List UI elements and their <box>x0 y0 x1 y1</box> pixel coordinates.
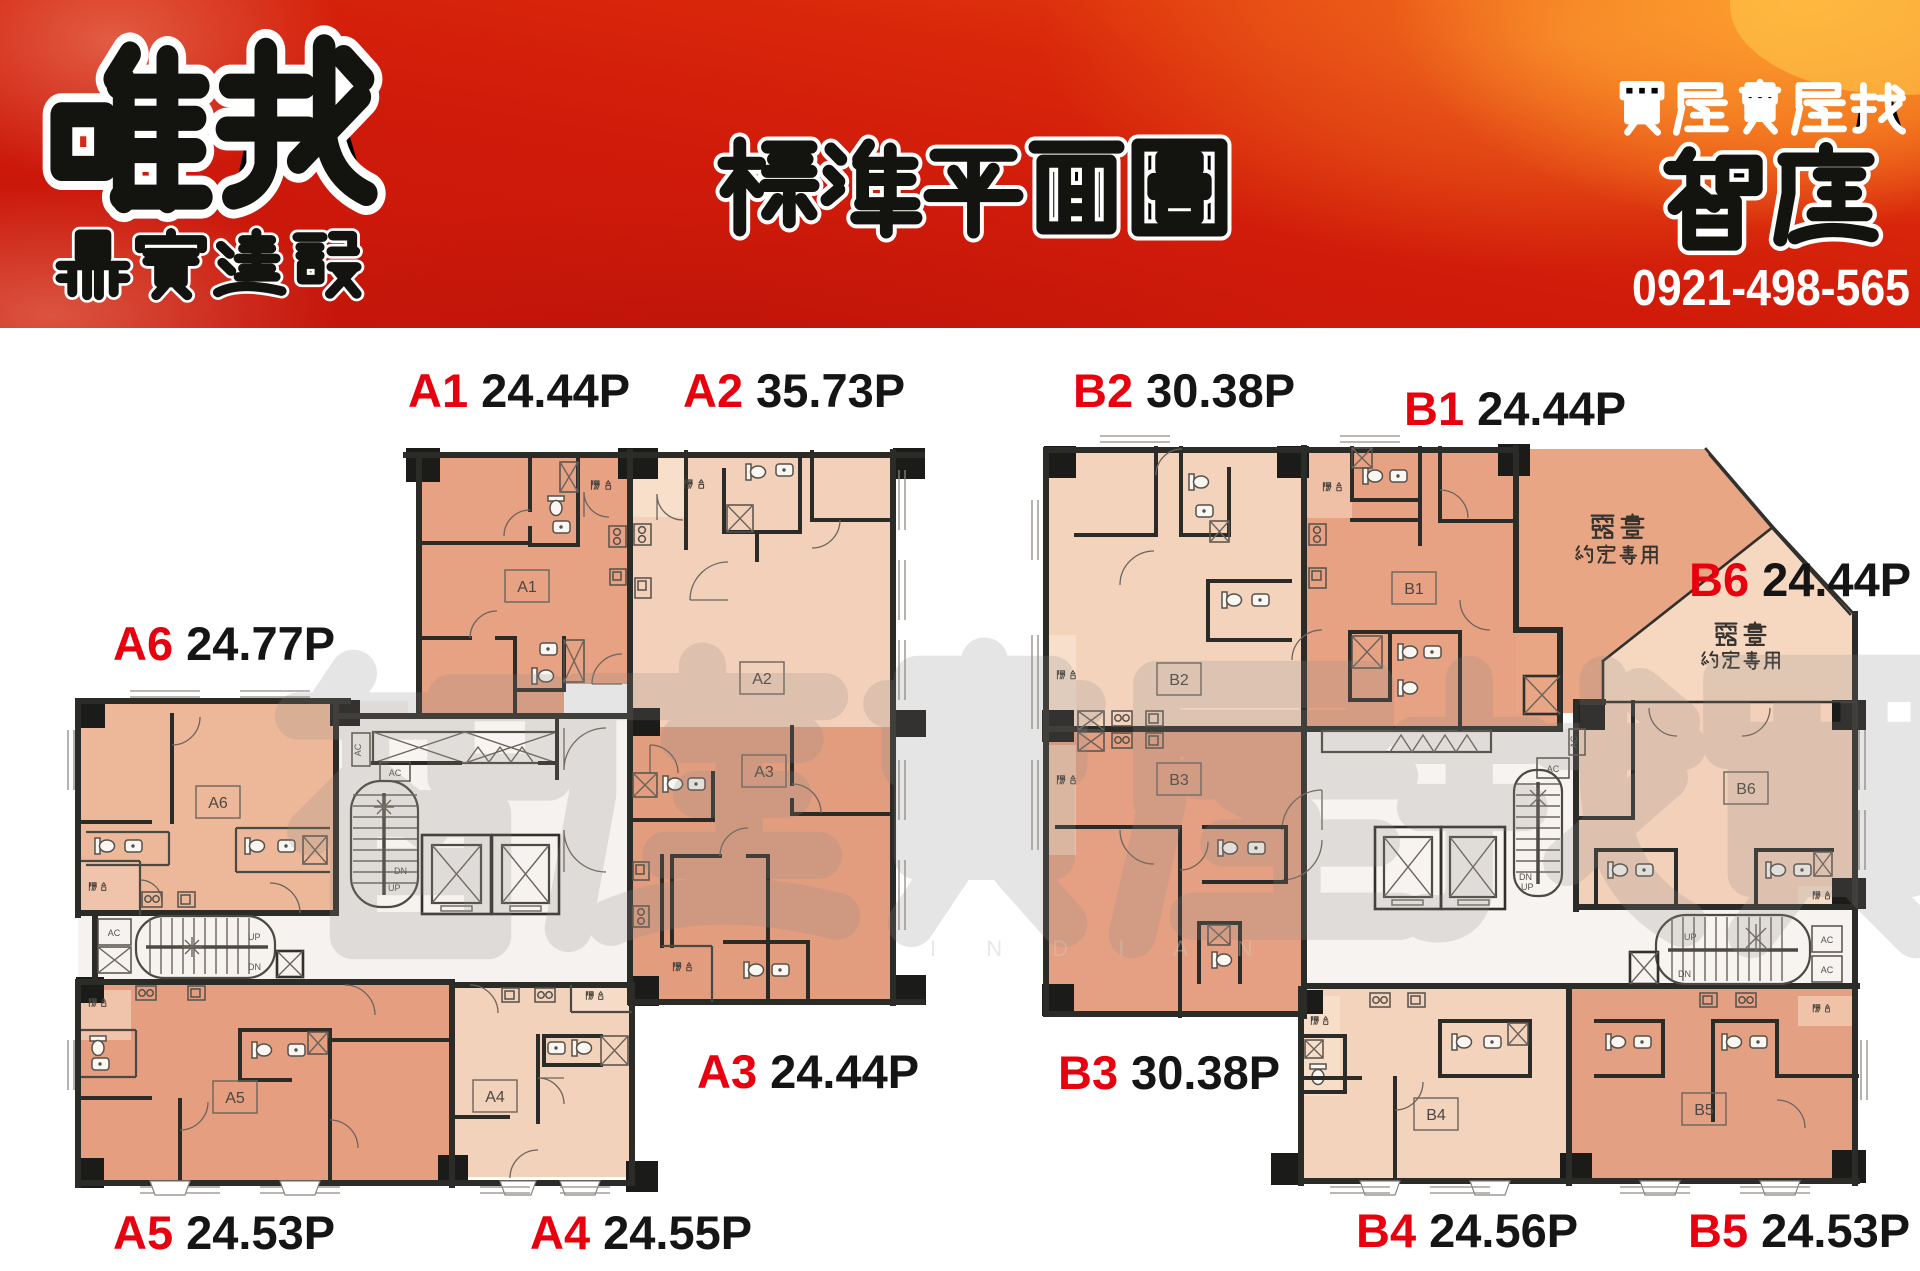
svg-text:DN: DN <box>1519 872 1532 882</box>
svg-text:AC: AC <box>1821 935 1834 945</box>
svg-text:B1 24.44P: B1 24.44P <box>1404 382 1626 435</box>
svg-text:B5 24.53P: B5 24.53P <box>1688 1204 1910 1257</box>
svg-text:B6 24.44P: B6 24.44P <box>1689 553 1911 606</box>
svg-text:AC: AC <box>1821 965 1834 975</box>
svg-text:UP: UP <box>248 932 261 942</box>
svg-text:A5: A5 <box>225 1090 245 1107</box>
svg-text:B1: B1 <box>1404 581 1424 598</box>
svg-text:B4 24.56P: B4 24.56P <box>1356 1204 1578 1257</box>
svg-text:A1 24.44P: A1 24.44P <box>408 364 630 417</box>
svg-text:B5: B5 <box>1694 1102 1714 1119</box>
svg-text:DN: DN <box>1678 969 1691 979</box>
svg-text:A6 24.77P: A6 24.77P <box>113 617 335 670</box>
svg-text:A4: A4 <box>485 1089 505 1106</box>
svg-text:0921-498-565: 0921-498-565 <box>1632 259 1910 316</box>
svg-text:A1: A1 <box>517 579 537 596</box>
svg-text:B3 30.38P: B3 30.38P <box>1058 1046 1280 1099</box>
svg-text:UP: UP <box>1521 882 1534 892</box>
svg-text:A6: A6 <box>208 795 228 812</box>
svg-text:A3 24.44P: A3 24.44P <box>697 1045 919 1098</box>
svg-text:B4: B4 <box>1426 1107 1446 1124</box>
svg-text:B2 30.38P: B2 30.38P <box>1073 364 1295 417</box>
svg-text:DN: DN <box>248 962 261 972</box>
svg-text:A5 24.53P: A5 24.53P <box>113 1206 335 1259</box>
svg-text:A2 35.73P: A2 35.73P <box>683 364 905 417</box>
svg-text:AC: AC <box>108 928 121 938</box>
svg-text:A4 24.55P: A4 24.55P <box>530 1206 752 1259</box>
svg-text:I N D I A N: I N D I A N <box>930 936 1275 961</box>
